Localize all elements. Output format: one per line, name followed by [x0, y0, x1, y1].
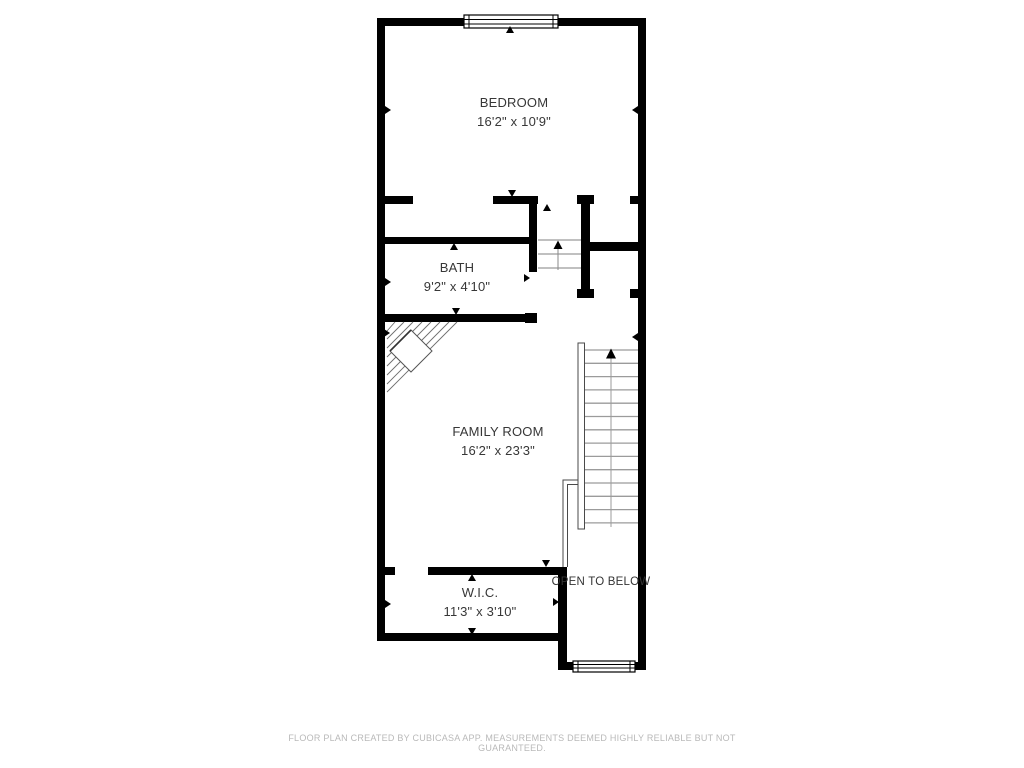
measurement-tick	[385, 600, 391, 608]
measurement-tick	[508, 190, 516, 197]
bedroom-name: BEDROOM	[434, 93, 594, 112]
open-to-below-label: OPEN TO BELOW	[521, 575, 681, 589]
measurement-tick	[632, 333, 638, 341]
floor-plan-page: BEDROOM 16'2" x 10'9" BATH 9'2" x 4'10" …	[0, 0, 1024, 768]
right-wall	[638, 18, 646, 670]
right-wall-stub-top	[630, 196, 638, 204]
bath-label: BATH 9'2" x 4'10"	[377, 258, 537, 296]
family-room-label: FAMILY ROOM 16'2" x 23'3"	[418, 422, 578, 460]
bath-dimensions: 9'2" x 4'10"	[377, 277, 537, 296]
bath-name: BATH	[377, 258, 537, 277]
measurement-tick	[452, 308, 460, 315]
measurement-tick	[450, 243, 458, 250]
open-below-outline-outer	[563, 480, 578, 567]
measurement-tick	[543, 204, 551, 211]
bedroom-dimensions: 16'2" x 10'9"	[434, 112, 594, 131]
measurement-tick	[384, 329, 390, 337]
bath-bottom-wall-cap	[525, 313, 537, 323]
bath-bottom-wall	[377, 314, 526, 322]
winder-staircase	[387, 322, 457, 392]
landing-left-wall	[581, 196, 590, 298]
measurement-tick	[542, 560, 550, 567]
family-room-name: FAMILY ROOM	[418, 422, 578, 441]
wic-dimensions: 11'3" x 3'10"	[400, 602, 560, 621]
landing-bottom-wall	[590, 242, 638, 251]
bath-top-wall	[377, 237, 529, 244]
landing-left-wall-cap-bottom	[577, 289, 594, 298]
stairs-up-arrow-icon	[554, 241, 563, 250]
measurement-tick	[632, 106, 638, 114]
main-staircase-rail	[578, 343, 585, 529]
bedroom-label: BEDROOM 16'2" x 10'9"	[434, 93, 594, 131]
wic-top-wall-stub	[385, 567, 395, 575]
measurement-tick	[385, 106, 391, 114]
footer-disclaimer: FLOOR PLAN CREATED BY CUBICASA APP. MEAS…	[262, 733, 762, 753]
top-wall-window	[464, 15, 558, 28]
left-wall	[377, 18, 385, 641]
right-wall-stub-mid	[630, 289, 638, 298]
open-below-outline-inner	[568, 485, 579, 568]
bedroom-wall-left-segment	[377, 196, 413, 204]
wic-top-wall	[428, 567, 567, 575]
family-room-dimensions: 16'2" x 23'3"	[418, 441, 578, 460]
upper-run-staircase	[538, 240, 581, 270]
measurement-tick	[468, 574, 476, 581]
landing-left-wall-cap-top	[577, 195, 594, 204]
bottom-wall-window	[573, 661, 635, 672]
